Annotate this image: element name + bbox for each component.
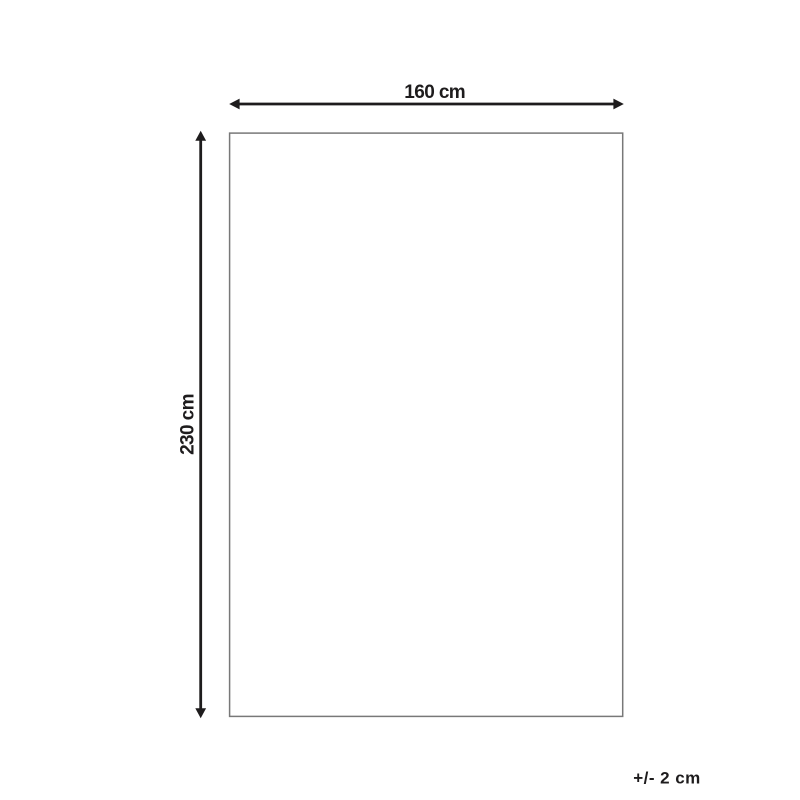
svg-text:160 cm: 160 cm (404, 82, 465, 103)
svg-text:230 cm: 230 cm (178, 394, 199, 455)
svg-text:+/- 2 cm: +/- 2 cm (633, 769, 700, 788)
